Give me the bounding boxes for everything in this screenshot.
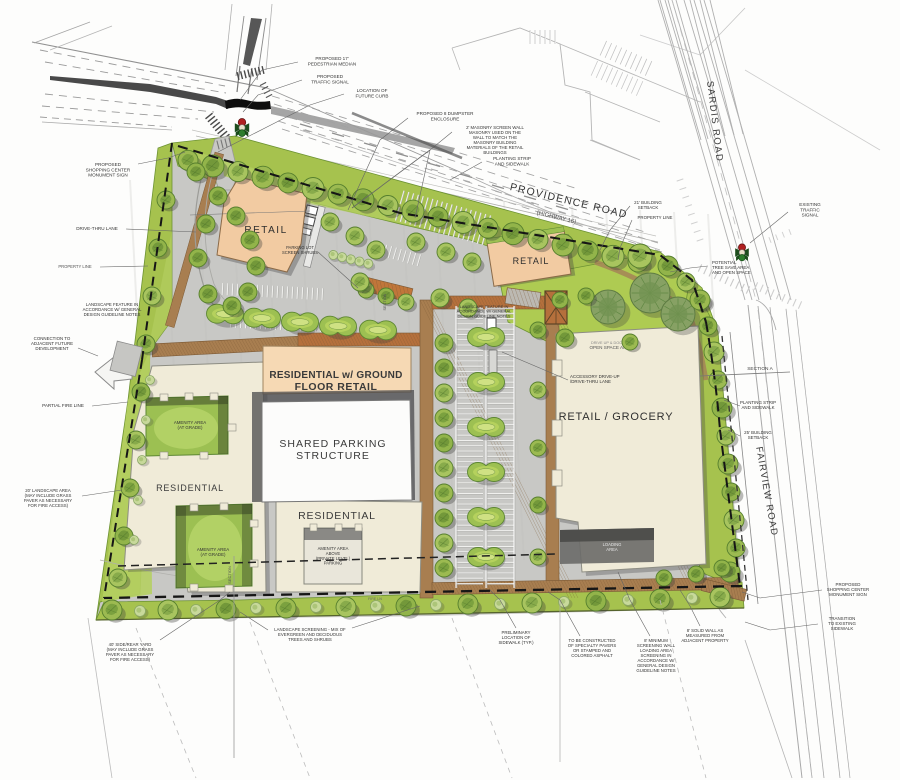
svg-text:SECTION: SECTION	[383, 293, 387, 310]
svg-text:PARKING: PARKING	[324, 561, 343, 566]
svg-text:SIDEWALK (TYP.): SIDEWALK (TYP.)	[498, 640, 534, 645]
svg-text:DEVELOPMENT: DEVELOPMENT	[35, 346, 68, 351]
svg-text:PEDESTRIAN MEDIAN: PEDESTRIAN MEDIAN	[308, 61, 357, 66]
svg-text:DESIGN GUIDELINE NOTES: DESIGN GUIDELINE NOTES	[458, 313, 511, 318]
svg-text:SIDEWALK: SIDEWALK	[831, 626, 854, 631]
svg-text:TRAFFIC SIGNAL: TRAFFIC SIGNAL	[311, 79, 349, 84]
svg-text:EXISTING: EXISTING	[799, 202, 821, 207]
svg-text:FIRE LN: FIRE LN	[368, 597, 382, 601]
svg-text:PROPOSED 8 DUMPSTER: PROPOSED 8 DUMPSTER	[417, 111, 475, 116]
svg-text:MONUMENT SIGN: MONUMENT SIGN	[829, 592, 867, 597]
svg-text:SHOPPING CENTER: SHOPPING CENTER	[86, 167, 131, 172]
svg-text:PARTIAL FIRE LINE: PARTIAL FIRE LINE	[42, 403, 84, 408]
svg-text:STRUCTURE: STRUCTURE	[296, 450, 370, 462]
svg-text:PROPERTY LINE: PROPERTY LINE	[58, 264, 92, 269]
svg-text:AND OPEN SPACE: AND OPEN SPACE	[712, 270, 751, 275]
svg-text:ADJACENT PROPERTY: ADJACENT PROPERTY	[681, 638, 728, 643]
svg-text:FUTURE CURB: FUTURE CURB	[356, 93, 389, 98]
svg-text:TREES AND SHRUBS: TREES AND SHRUBS	[288, 637, 332, 642]
svg-text:MONUMENT SIGN: MONUMENT SIGN	[88, 173, 127, 178]
svg-text:RESIDENTIAL: RESIDENTIAL	[298, 510, 376, 522]
svg-text:DRIVE-THRU LANE: DRIVE-THRU LANE	[76, 226, 118, 231]
svg-text:GUIDELINE NOTES: GUIDELINE NOTES	[636, 668, 675, 673]
svg-text:PLANTING STRIP: PLANTING STRIP	[493, 156, 531, 161]
svg-text:SETBACK: SETBACK	[748, 435, 769, 440]
svg-text:PROPERTY LINE: PROPERTY LINE	[638, 215, 673, 220]
svg-text:PROPOSED 17′: PROPOSED 17′	[315, 56, 348, 61]
svg-text:SECTION: SECTION	[227, 566, 232, 584]
svg-text:ENCLOSURE: ENCLOSURE	[431, 116, 460, 121]
svg-text:AND SIDEWALK: AND SIDEWALK	[741, 405, 774, 410]
svg-text:FLOOR RETAIL: FLOOR RETAIL	[295, 381, 378, 393]
svg-text:AREA: AREA	[606, 547, 618, 552]
svg-text:PROPOSED: PROPOSED	[317, 74, 344, 79]
svg-text:/DRIVE-THRU LANE: /DRIVE-THRU LANE	[570, 379, 611, 384]
svg-text:SIGNAL: SIGNAL	[802, 213, 819, 218]
svg-text:TRAFFIC: TRAFFIC	[800, 207, 820, 212]
svg-text:SECTION A: SECTION A	[747, 366, 773, 372]
svg-text:DESIGN GUIDELINE NOTES: DESIGN GUIDELINE NOTES	[84, 312, 141, 317]
svg-text:SETBACK: SETBACK	[638, 205, 659, 210]
svg-text:FOR FIRE ACCESS): FOR FIRE ACCESS)	[110, 657, 151, 662]
svg-text:SCREEN SHRUBS: SCREEN SHRUBS	[282, 250, 318, 255]
svg-text:RESIDENTIAL w/ GROUND: RESIDENTIAL w/ GROUND	[269, 370, 402, 381]
svg-text:PROPOSED: PROPOSED	[95, 162, 122, 167]
svg-text:LOCATION OF: LOCATION OF	[357, 88, 388, 93]
svg-text:AND SIDEWALK: AND SIDEWALK	[495, 161, 530, 166]
svg-text:(AT GRADE): (AT GRADE)	[201, 552, 227, 557]
svg-text:COLORED ASPHALT: COLORED ASPHALT	[571, 653, 613, 658]
svg-text:RESIDENTIAL: RESIDENTIAL	[156, 483, 224, 493]
svg-text:FOR FIRE ACCESS): FOR FIRE ACCESS)	[28, 503, 69, 508]
svg-text:SHARED PARKING: SHARED PARKING	[279, 438, 386, 450]
svg-text:BUILDINGS: BUILDINGS	[483, 150, 506, 155]
svg-text:(AT GRADE): (AT GRADE)	[178, 425, 204, 430]
svg-text:RETAIL: RETAIL	[513, 256, 550, 266]
svg-text:RETAIL / GROCERY: RETAIL / GROCERY	[559, 411, 674, 423]
